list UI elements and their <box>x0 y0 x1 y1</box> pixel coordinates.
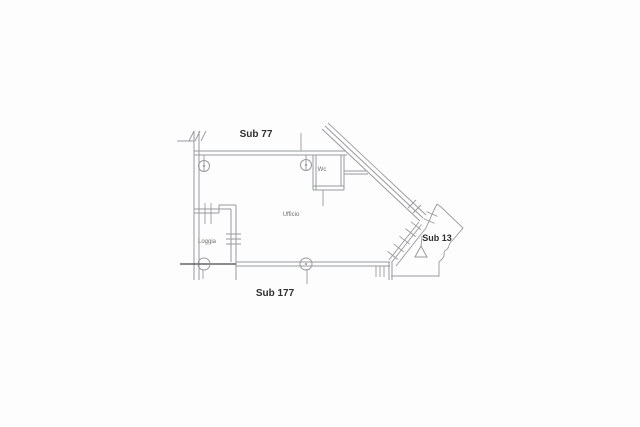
wc-room <box>313 155 368 206</box>
wc-stub-wall <box>344 171 368 174</box>
label-sub13: Sub 13 <box>422 233 452 243</box>
left-wall <box>177 131 206 280</box>
break-line-icon <box>443 241 452 258</box>
column-markers <box>198 155 312 284</box>
label-loggia: Loggia <box>198 239 217 245</box>
column-marker-icon <box>198 258 210 279</box>
wall-break-hatch-icon <box>189 131 206 141</box>
floor-plan-svg: Sub 77 Sub 177 Sub 13 Ufficio Wc Loggia <box>0 0 640 427</box>
label-sub177: Sub 177 <box>256 288 295 299</box>
column-marker-icon <box>301 155 312 171</box>
label-sub77: Sub 77 <box>240 129 273 140</box>
diagonal-doorway <box>388 222 422 263</box>
label-wc: Wc <box>318 167 327 173</box>
bottom-wall <box>236 262 392 280</box>
diagonal-wall <box>322 123 426 221</box>
floor-plan-canvas: Sub 77 Sub 177 Sub 13 Ufficio Wc Loggia <box>0 0 640 427</box>
label-ufficio: Ufficio <box>283 212 300 218</box>
bottom-wall-hatch-icon <box>376 266 384 277</box>
loggia-door-ticks-icon <box>226 234 241 244</box>
bottom-wall-end <box>389 262 392 280</box>
column-marker-icon <box>199 155 210 172</box>
